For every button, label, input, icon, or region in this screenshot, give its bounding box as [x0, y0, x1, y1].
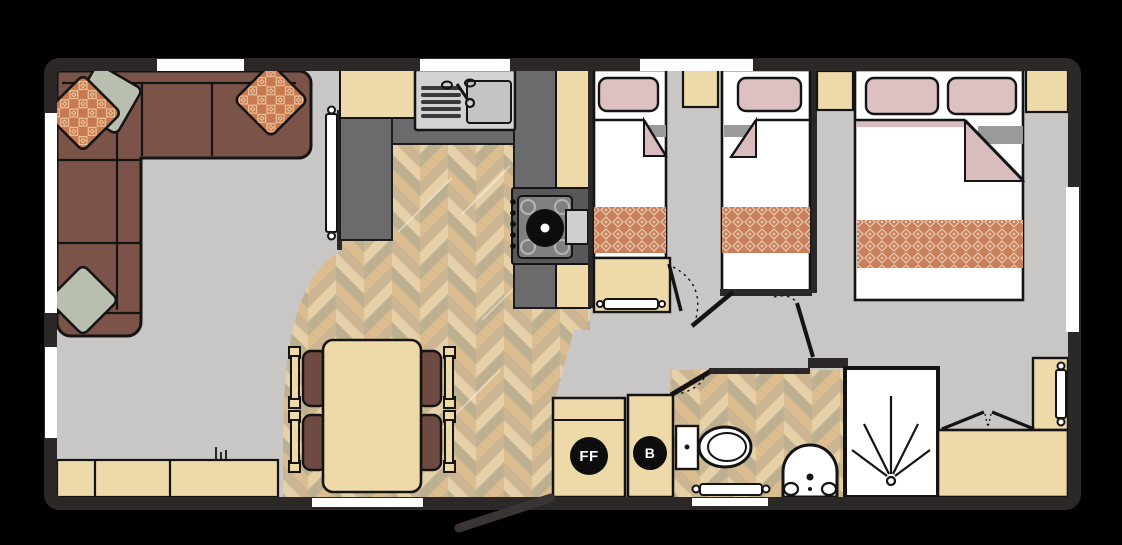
bedside-cabinet-right	[1026, 68, 1068, 112]
pillow	[738, 78, 801, 111]
fridge-freezer-unit: FF	[553, 398, 625, 497]
double-doorway-wall	[808, 358, 848, 368]
window-twin-top	[640, 59, 753, 71]
pillow	[948, 78, 1016, 114]
lounge-radiator-icon	[326, 107, 337, 240]
window-bathroom-bottom	[692, 498, 768, 506]
radiator-icon	[1056, 370, 1066, 418]
dining-chair	[289, 411, 327, 472]
bed-runner	[722, 207, 810, 253]
bed-runner	[594, 207, 666, 253]
toilet-icon	[676, 426, 751, 469]
kitchen-cabinet-right-lower	[556, 262, 590, 308]
towel-radiator-icon	[693, 484, 770, 495]
caravan-floorplan: FF B	[0, 0, 1122, 545]
dining-table	[323, 340, 421, 492]
single-bed-2	[722, 70, 810, 293]
window-kitchen-top	[420, 59, 510, 71]
dining-chair	[289, 347, 327, 408]
sink-icon	[415, 70, 515, 130]
bedside-cabinet-left	[817, 71, 853, 110]
twin-bedside-cabinet	[683, 68, 718, 107]
worktop-left	[340, 118, 392, 240]
twin-vanity-cabinet	[594, 258, 670, 312]
window-dining-bottom	[312, 498, 423, 507]
bed-runner	[857, 220, 1023, 268]
boiler-unit: B	[628, 395, 673, 497]
twin-foot-wall	[720, 289, 812, 296]
window-double-right	[1066, 187, 1079, 332]
window-lounge-left-2	[45, 347, 57, 438]
shower-icon	[845, 368, 938, 497]
double-radiator-cabinet	[1033, 358, 1068, 430]
fridge-freezer-label: FF	[579, 448, 598, 465]
hob-icon	[510, 188, 590, 264]
double-bed	[855, 70, 1023, 300]
pillow	[866, 78, 938, 114]
dining-chair	[417, 411, 455, 472]
radiator-icon	[604, 299, 658, 309]
dining-chair	[417, 347, 455, 408]
single-bed-1	[594, 70, 666, 258]
dining-area	[289, 340, 455, 492]
basin-icon	[783, 445, 837, 497]
kitchen-cabinet-right-upper	[556, 68, 590, 190]
pillow	[599, 78, 658, 111]
floorplan-canvas: FF B	[0, 0, 1122, 545]
window-lounge-left-1	[45, 113, 57, 313]
window-lounge-top	[157, 59, 244, 71]
kitchen-cabinet-topleft	[340, 68, 416, 118]
bathroom-top-wall	[709, 368, 810, 374]
boiler-label: B	[645, 445, 656, 461]
